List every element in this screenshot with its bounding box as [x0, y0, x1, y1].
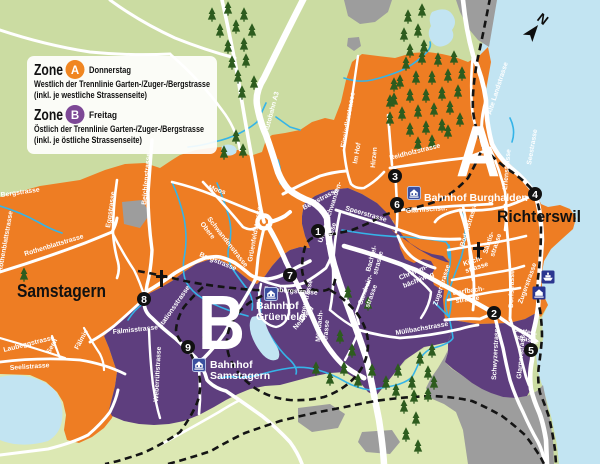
svg-text:Östlich der Trennlinie Garten-: Östlich der Trennlinie Garten-/Zuger-/Be… [34, 124, 204, 134]
svg-text:8: 8 [141, 294, 147, 306]
svg-text:Richterswil: Richterswil [497, 207, 581, 226]
svg-text:Samstagern: Samstagern [210, 370, 270, 382]
svg-text:9: 9 [185, 342, 191, 354]
svg-text:Grüenfeld: Grüenfeld [256, 311, 306, 323]
svg-text:Westlich der Trennlinie Garten: Westlich der Trennlinie Garten-/Zuger-/B… [34, 79, 210, 89]
svg-text:Zone: Zone [34, 107, 63, 124]
svg-text:Dorfstrasse: Dorfstrasse [508, 270, 516, 308]
svg-text:Zone: Zone [34, 62, 63, 79]
svg-text:Freitag: Freitag [89, 110, 117, 121]
svg-text:Samstagern: Samstagern [17, 281, 106, 301]
svg-text:2: 2 [491, 308, 497, 320]
svg-text:A: A [71, 65, 79, 77]
svg-text:B: B [198, 280, 245, 366]
svg-text:1: 1 [315, 226, 321, 238]
svg-text:(inkl. je östliche Strassensei: (inkl. je östliche Strassenseite) [34, 135, 142, 145]
svg-text:(inkl. je westliche Strassense: (inkl. je westliche Strassenseite) [34, 90, 147, 100]
svg-text:Bahnhof Burghalden: Bahnhof Burghalden [424, 192, 528, 204]
svg-text:5: 5 [528, 345, 534, 357]
svg-text:Donnerstag: Donnerstag [89, 65, 131, 76]
svg-text:7: 7 [287, 270, 293, 282]
svg-text:A: A [456, 112, 500, 192]
svg-text:6: 6 [394, 199, 400, 211]
svg-text:B: B [71, 110, 79, 122]
svg-text:3: 3 [392, 171, 398, 183]
svg-text:4: 4 [532, 189, 538, 201]
